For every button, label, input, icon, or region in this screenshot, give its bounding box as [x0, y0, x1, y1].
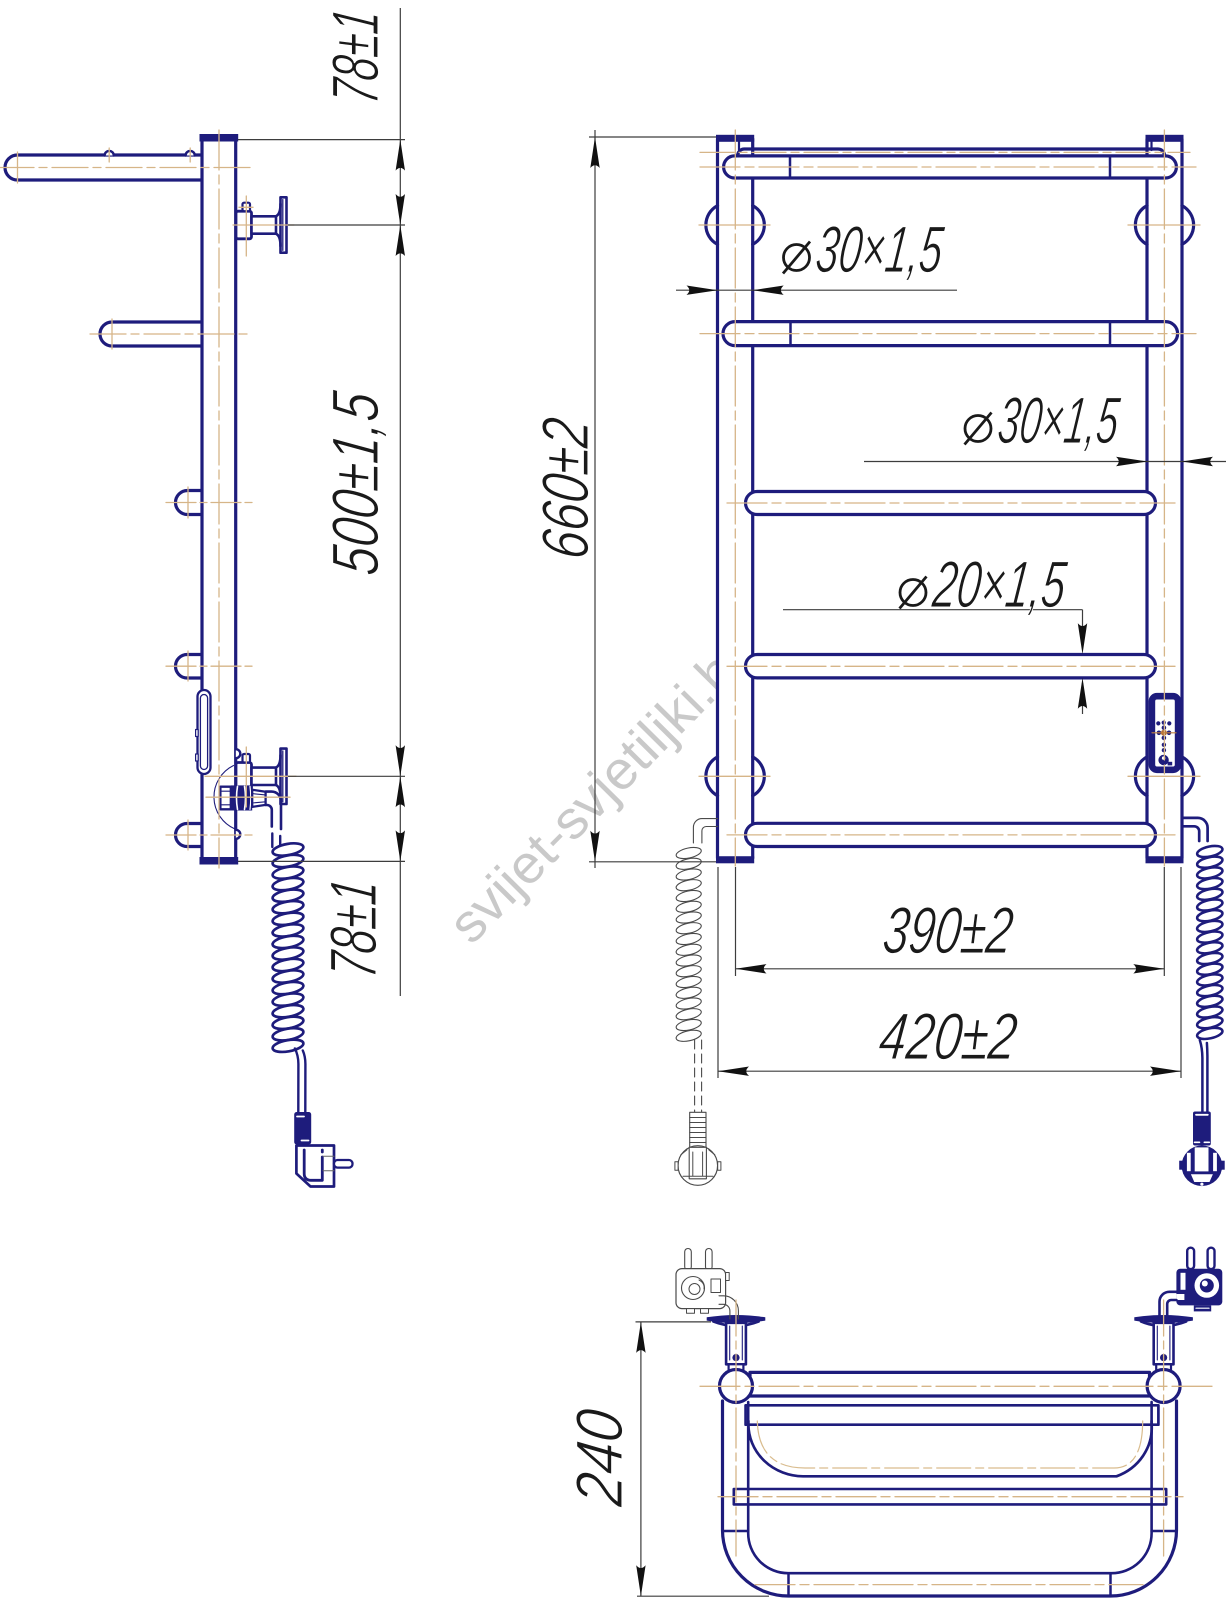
- svg-text:30×1,5: 30×1,5: [812, 213, 947, 287]
- svg-text:78±1: 78±1: [317, 875, 391, 982]
- svg-text:390±2: 390±2: [879, 894, 1017, 968]
- svg-text:660±2: 660±2: [529, 414, 603, 563]
- svg-text:78±1: 78±1: [319, 5, 393, 108]
- svg-text:500±1,5: 500±1,5: [319, 388, 393, 579]
- svg-text:30×1,5: 30×1,5: [994, 384, 1123, 458]
- svg-text:20×1,5: 20×1,5: [929, 548, 1071, 622]
- svg-text:420±2: 420±2: [875, 1000, 1021, 1074]
- svg-text:240: 240: [563, 1405, 637, 1510]
